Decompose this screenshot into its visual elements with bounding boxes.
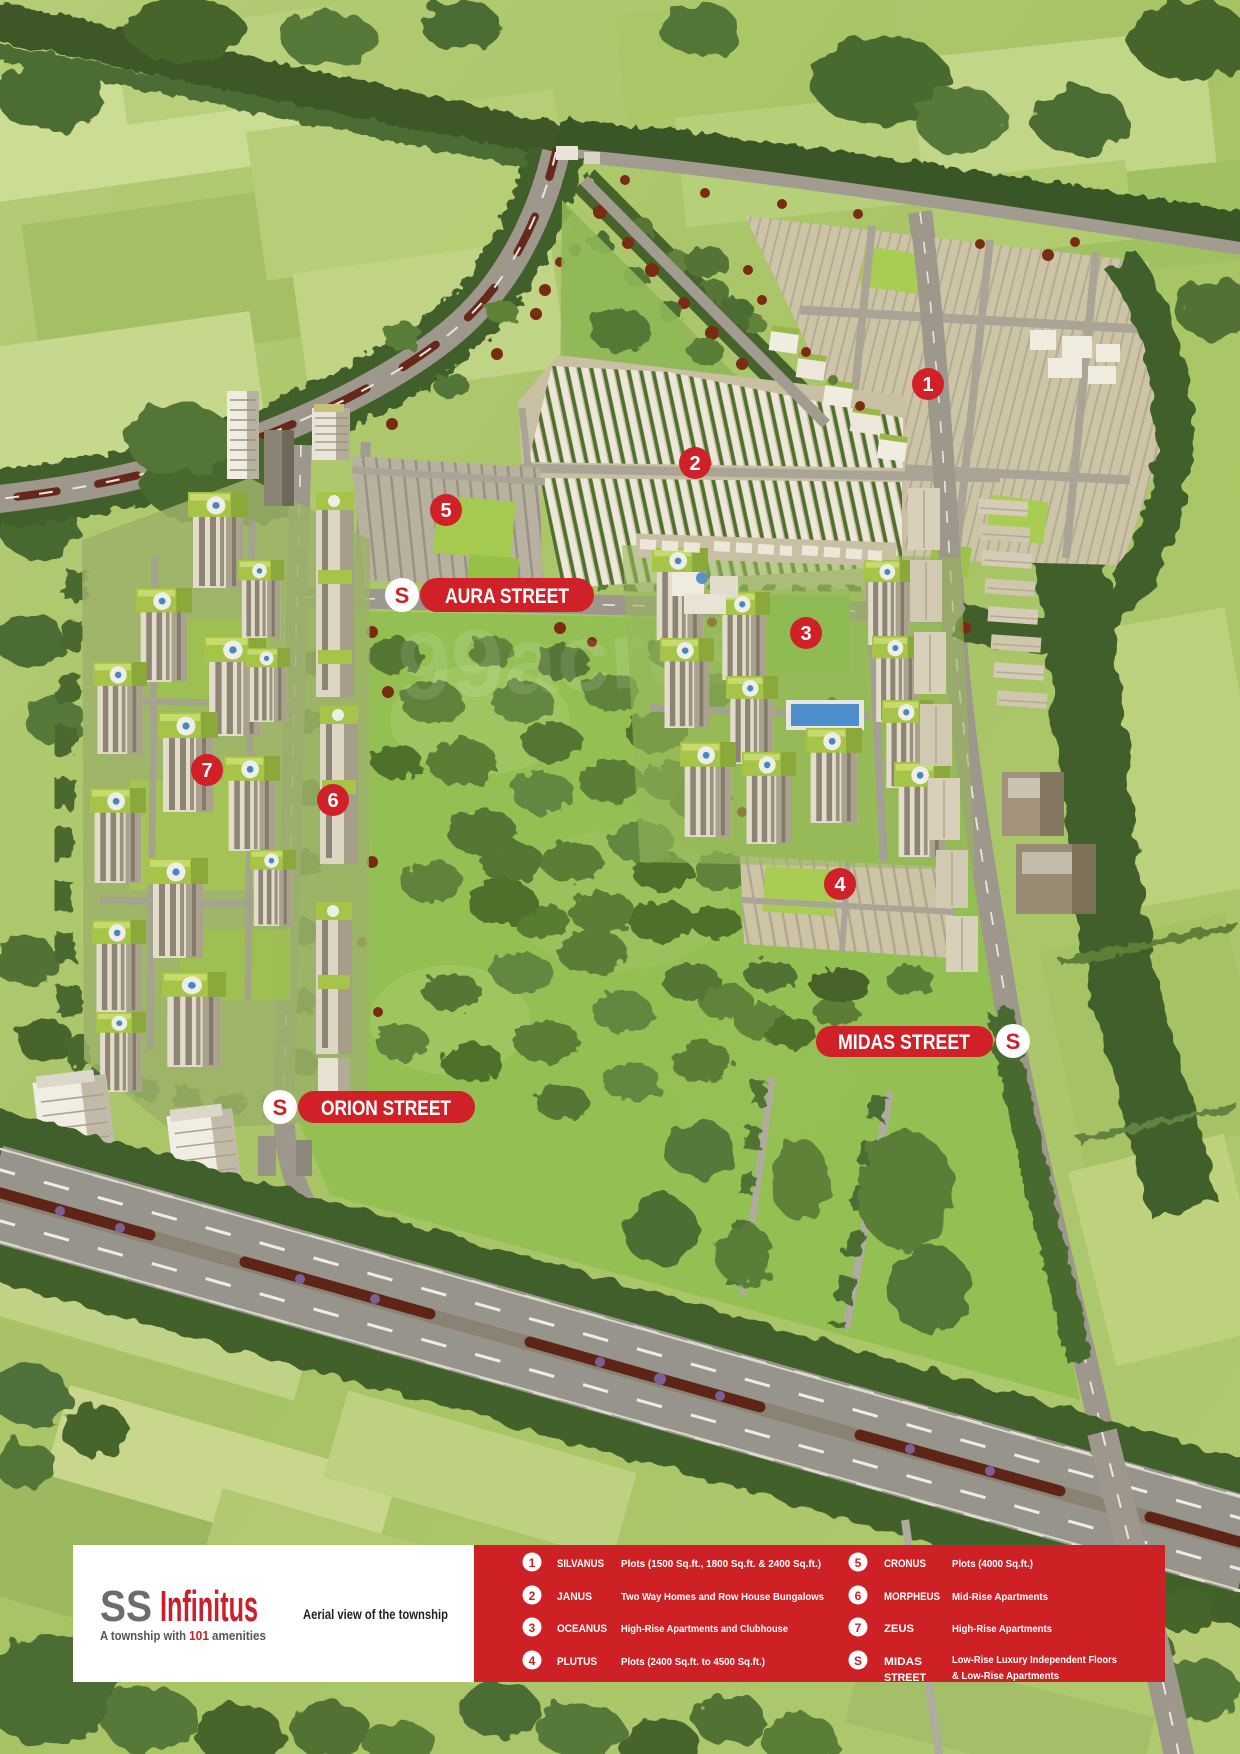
svg-text:6: 6 xyxy=(855,1589,862,1603)
svg-text:2: 2 xyxy=(689,453,700,475)
svg-text:MIDAS: MIDAS xyxy=(884,1656,922,1668)
svg-text:4: 4 xyxy=(834,874,846,896)
svg-text:Aerial view of the township: Aerial view of the township xyxy=(303,1606,448,1622)
svg-text:MIDAS STREET: MIDAS STREET xyxy=(838,1031,970,1054)
svg-text:ORION STREET: ORION STREET xyxy=(321,1097,451,1120)
svg-text:3: 3 xyxy=(800,623,811,645)
svg-text:OCEANUS: OCEANUS xyxy=(557,1623,607,1635)
svg-text:2: 2 xyxy=(529,1589,536,1603)
svg-text:S: S xyxy=(854,1654,862,1668)
svg-text:ZEUS: ZEUS xyxy=(884,1623,914,1635)
svg-text:amenities: amenities xyxy=(212,1628,266,1643)
svg-text:PLUTUS: PLUTUS xyxy=(557,1656,597,1668)
svg-text:& Low-Rise Apartments: & Low-Rise Apartments xyxy=(952,1670,1059,1682)
svg-text:1: 1 xyxy=(529,1556,536,1570)
svg-text:Low-Rise Luxury Independent Fl: Low-Rise Luxury Independent Floors xyxy=(952,1654,1117,1666)
svg-text:A township with: A township with xyxy=(100,1628,186,1643)
svg-text:7: 7 xyxy=(855,1621,862,1635)
svg-text:High-Rise Apartments: High-Rise Apartments xyxy=(952,1623,1052,1635)
svg-text:101: 101 xyxy=(189,1628,209,1643)
svg-text:4: 4 xyxy=(529,1654,536,1668)
svg-text:Plots (1500 Sq.ft., 1800 Sq.ft: Plots (1500 Sq.ft., 1800 Sq.ft. & 2400 S… xyxy=(621,1558,821,1570)
svg-text:Infinitus: Infinitus xyxy=(160,1582,258,1631)
svg-text:STREET: STREET xyxy=(884,1672,926,1684)
svg-text:S: S xyxy=(1006,1029,1021,1054)
svg-text:SS: SS xyxy=(100,1582,152,1631)
svg-text:AURA STREET: AURA STREET xyxy=(445,585,569,608)
svg-text:MORPHEUS: MORPHEUS xyxy=(884,1591,940,1603)
svg-text:S: S xyxy=(273,1095,288,1120)
svg-text:High-Rise Apartments and Clubh: High-Rise Apartments and Clubhouse xyxy=(621,1623,788,1635)
svg-text:S: S xyxy=(395,583,410,608)
svg-text:6: 6 xyxy=(327,790,338,812)
svg-text:Two Way Homes and Row House Bu: Two Way Homes and Row House Bungalows xyxy=(621,1591,824,1603)
svg-text:3: 3 xyxy=(529,1621,536,1635)
svg-text:Plots (4000 Sq.ft.): Plots (4000 Sq.ft.) xyxy=(952,1558,1033,1570)
svg-text:5: 5 xyxy=(855,1556,862,1570)
svg-text:SILVANUS: SILVANUS xyxy=(557,1558,604,1570)
svg-text:Plots (2400 Sq.ft. to 4500 Sq.: Plots (2400 Sq.ft. to 4500 Sq.ft.) xyxy=(621,1656,765,1668)
svg-text:CRONUS: CRONUS xyxy=(884,1558,926,1570)
svg-text:5: 5 xyxy=(440,500,451,522)
svg-text:Mid-Rise Apartments: Mid-Rise Apartments xyxy=(952,1591,1048,1603)
svg-text:1: 1 xyxy=(922,374,933,396)
svg-text:7: 7 xyxy=(201,760,212,782)
svg-text:JANUS: JANUS xyxy=(557,1591,592,1603)
